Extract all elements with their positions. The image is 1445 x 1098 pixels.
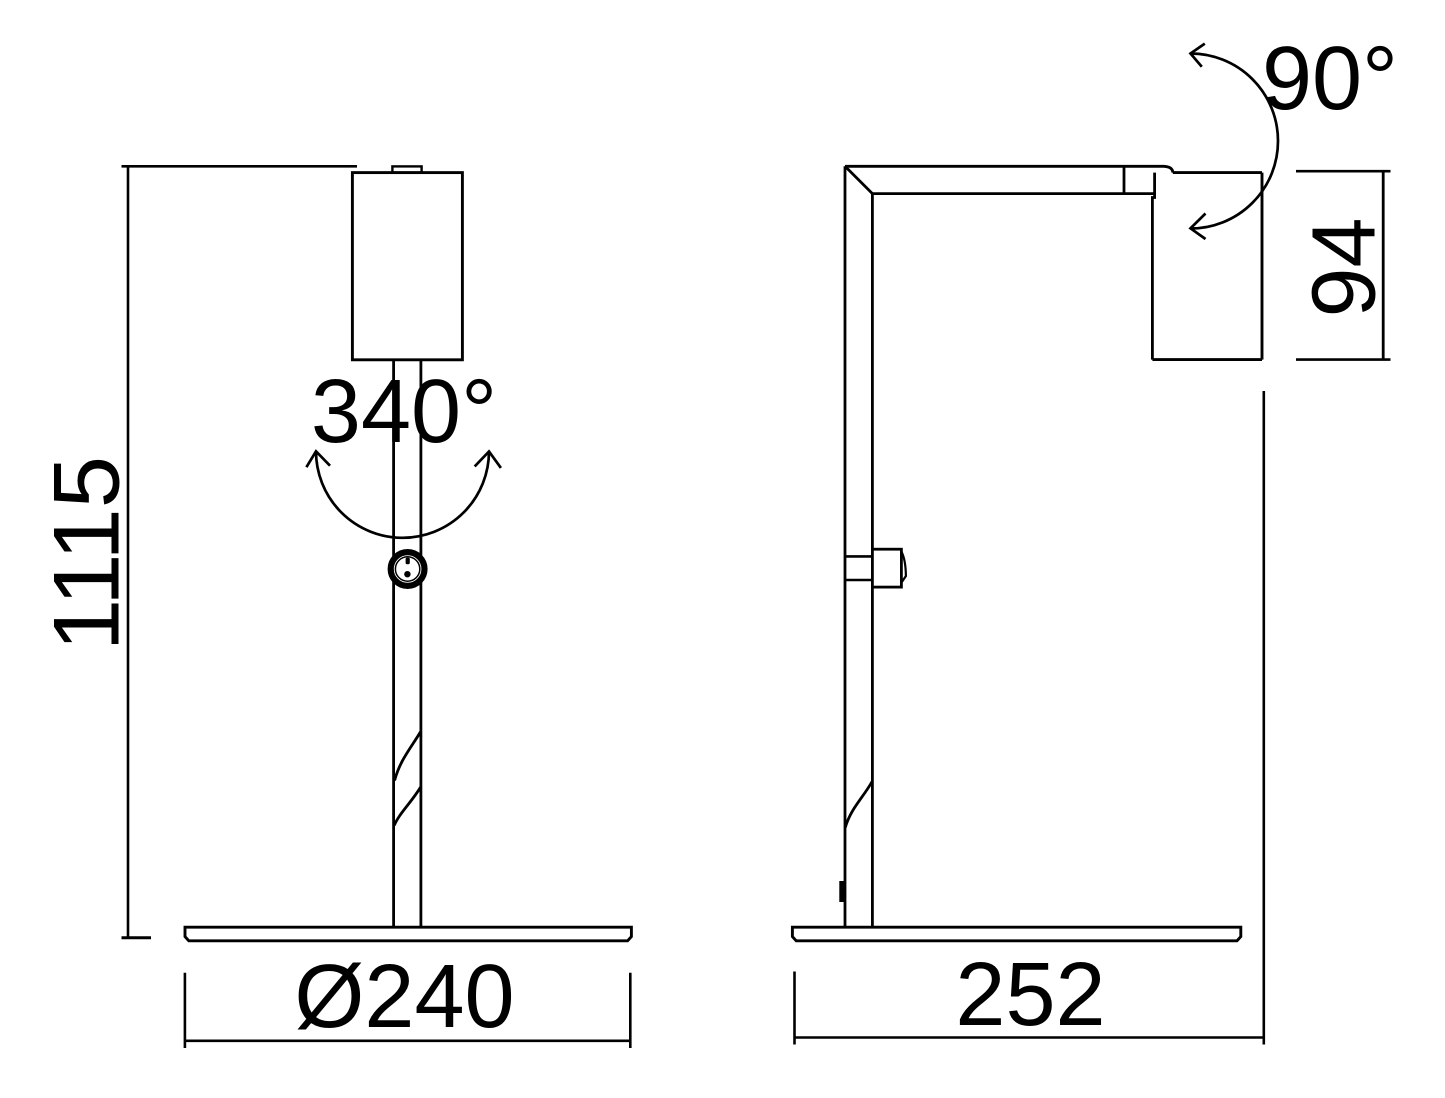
svg-text:94: 94 <box>1295 217 1395 317</box>
svg-text:90°: 90° <box>1262 29 1398 129</box>
svg-text:252: 252 <box>955 945 1105 1045</box>
svg-text:Ø240: Ø240 <box>294 947 514 1047</box>
svg-text:340°: 340° <box>311 362 497 462</box>
svg-text:1115: 1115 <box>33 456 138 651</box>
